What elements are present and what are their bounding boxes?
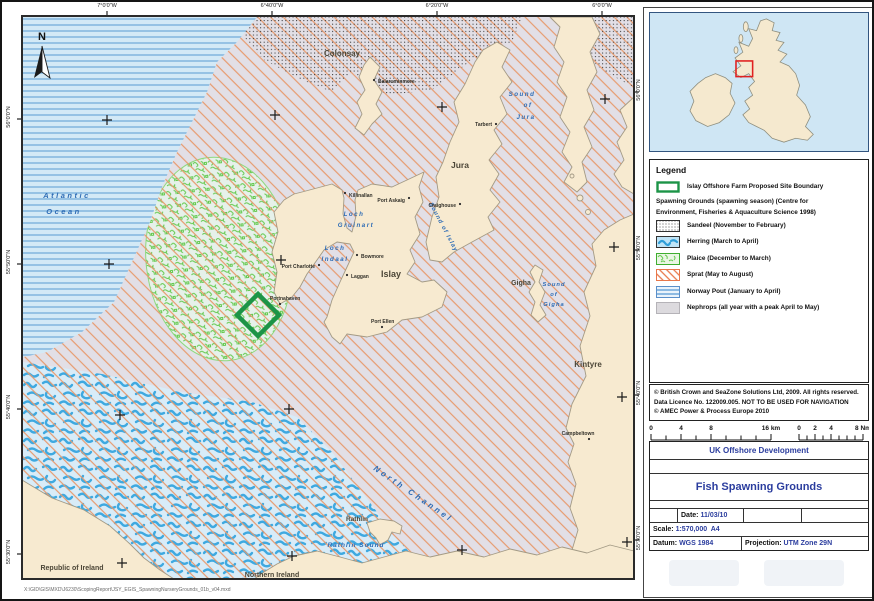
svg-text:Rathlin: Rathlin (346, 516, 368, 523)
svg-text:of: of (524, 102, 533, 109)
svg-text:Gigha: Gigha (511, 280, 531, 287)
svg-text:Ocean: Ocean (46, 207, 81, 216)
date-label: Date: (681, 512, 699, 519)
svg-text:2: 2 (813, 425, 817, 432)
svg-text:16 km: 16 km (762, 425, 781, 432)
legend-item-herring: Herring (March to April) (656, 236, 862, 248)
site-boundary-swatch-icon (656, 181, 680, 193)
svg-text:of: of (550, 292, 558, 298)
datum-projection-row: Datum: WGS 1984 Projection: UTM Zone 29N (650, 537, 868, 550)
axis-label-top-4: 6°0'0"W (574, 3, 630, 9)
map-title: Fish Spawning Grounds (696, 481, 823, 493)
scale-label: Scale: (653, 526, 674, 533)
herring-swatch-icon (656, 236, 680, 248)
date-cell: Date: 11/03/10 (678, 509, 744, 522)
ireland-shape (690, 74, 735, 127)
axis-label-top-3: 6°20'0"W (409, 3, 465, 9)
svg-text:4: 4 (679, 425, 683, 432)
svg-text:Gigha: Gigha (543, 302, 564, 308)
legend-subtitle-line2: Environment, Fisheries & Aquaculture Sci… (656, 209, 862, 216)
axis-label-left-4: 55°30'0"N (6, 524, 12, 580)
svg-text:Indaal: Indaal (322, 256, 349, 263)
date-row-cell-blank2 (744, 509, 802, 522)
datum-cell: Datum: WGS 1984 (650, 537, 742, 550)
date-row-cell-blank3 (802, 509, 868, 522)
project-title: UK Offshore Development (709, 446, 809, 455)
sprat-swatch-icon (656, 269, 680, 281)
legend: Legend Islay Offshore Farm Proposed Site… (649, 159, 869, 383)
copyright-line-2: Data Licence No. 122009.005. NOT TO BE U… (654, 398, 864, 408)
axis-label-right-1: 56°0'0"N (636, 62, 642, 118)
svg-text:0: 0 (649, 425, 653, 432)
axis-label-right-4: 55°30'0"N (636, 510, 642, 566)
axis-label-left-2: 55°50'0"N (6, 234, 12, 290)
svg-text:Jura: Jura (516, 114, 535, 121)
faint-stamp-1 (669, 560, 739, 586)
svg-text:Kintyre: Kintyre (574, 360, 602, 369)
svg-text:Balaruminmore: Balaruminmore (378, 79, 415, 85)
svg-text:4: 4 (829, 425, 833, 432)
axis-label-top-1: 7°0'0"W (79, 3, 135, 9)
svg-text:Rathlin Sound: Rathlin Sound (327, 542, 384, 549)
svg-text:Sound: Sound (542, 282, 565, 288)
svg-text:Laggan: Laggan (351, 274, 369, 280)
legend-item-sprat: Sprat (May to August) (656, 269, 862, 281)
svg-text:Atlantic: Atlantic (42, 191, 91, 200)
svg-text:Killinallan: Killinallan (349, 193, 373, 199)
legend-title: Legend (656, 165, 862, 175)
norway-pout-swatch-icon (656, 286, 680, 298)
svg-text:Loch: Loch (325, 245, 346, 252)
sandeel-swatch-icon (656, 220, 680, 232)
svg-text:8: 8 (709, 425, 713, 432)
legend-item-norway-pout: Norway Pout (January to April) (656, 286, 862, 298)
map-margin-panel: Legend Islay Offshore Farm Proposed Site… (643, 7, 873, 598)
axis-label-top-2: 6°40'0"W (244, 3, 300, 9)
svg-text:Bowmore: Bowmore (361, 254, 384, 260)
axis-label-right-3: 55°40'0"N (636, 365, 642, 421)
svg-text:Loch: Loch (344, 211, 365, 218)
svg-text:Republic of Ireland: Republic of Ireland (40, 565, 103, 572)
datum-label: Datum: (653, 540, 677, 547)
svg-text:Jura: Jura (451, 160, 469, 170)
legend-item-sandeel: Sandeel (November to February) (656, 220, 862, 232)
projection-value: UTM Zone 29N (784, 540, 833, 547)
file-path-text: X:\GID\GIS\MXD\J6230\ScopingReport\JSY_E… (24, 587, 231, 593)
project-title-row: UK Offshore Development (650, 442, 868, 460)
map-sheet: N Atlantic Ocean Loch Gruinart Loch Inda… (0, 0, 874, 601)
axis-label-left-1: 56°0'0"N (6, 89, 12, 145)
main-map: N Atlantic Ocean Loch Gruinart Loch Inda… (14, 8, 642, 587)
svg-text:0: 0 (797, 425, 801, 432)
map-title-row: Fish Spawning Grounds (650, 474, 868, 502)
svg-text:8 Nm: 8 Nm (855, 425, 869, 432)
copyright-line-3: © AMEC Power & Process Europe 2010 (654, 407, 864, 417)
date-row: Date: 11/03/10 (650, 509, 868, 523)
faint-stamp-2 (764, 560, 844, 586)
date-value: 11/03/10 (700, 512, 727, 519)
copyright-line-1: © British Crown and SeaZone Solutions Lt… (654, 388, 864, 398)
axis-label-right-2: 55°50'0"N (636, 220, 642, 276)
title-block: UK Offshore Development Fish Spawning Gr… (649, 441, 869, 551)
svg-text:Colonsay: Colonsay (324, 49, 361, 58)
legend-item-plaice: Plaice (December to March) (656, 253, 862, 265)
copyright-box: © British Crown and SeaZone Solutions Lt… (649, 384, 869, 421)
svg-text:Northern Ireland: Northern Ireland (245, 572, 299, 579)
svg-text:Tarbert: Tarbert (475, 122, 492, 128)
projection-label: Projection: (745, 540, 782, 547)
svg-text:Port Charlotte: Port Charlotte (282, 264, 316, 270)
scale-value: 1:570,000 A4 (676, 526, 720, 533)
svg-text:Craighouse: Craighouse (428, 203, 456, 209)
svg-text:Islay: Islay (381, 269, 401, 279)
svg-text:Port Ellen: Port Ellen (371, 319, 394, 325)
legend-item-nephrops: Nephrops (all year with a peak April to … (656, 302, 862, 314)
datum-value: WGS 1984 (679, 540, 713, 547)
uk-locator-inset-map (649, 12, 869, 152)
empty-row-1 (650, 460, 868, 474)
plaice-swatch-icon (656, 253, 680, 265)
empty-row-2 (650, 501, 868, 509)
great-britain-shape (733, 19, 813, 142)
legend-subtitle-line1: Spawning Grounds (spawning season) (Cent… (656, 198, 862, 205)
date-row-cell-blank1 (650, 509, 678, 522)
svg-text:Portnahaven: Portnahaven (270, 296, 300, 302)
projection-cell: Projection: UTM Zone 29N (742, 537, 868, 550)
svg-text:N: N (38, 31, 46, 43)
scale-row: Scale: 1:570,000 A4 (650, 523, 868, 537)
axis-label-left-3: 55°40'0"N (6, 379, 12, 435)
svg-text:Sound: Sound (509, 91, 536, 98)
svg-text:Port Askaig: Port Askaig (377, 198, 405, 204)
svg-text:Gruinart: Gruinart (338, 222, 374, 229)
svg-text:Campbeltown: Campbeltown (562, 431, 595, 437)
legend-item-site-boundary: Islay Offshore Farm Proposed Site Bounda… (656, 181, 862, 193)
nephrops-swatch-icon (656, 302, 680, 314)
